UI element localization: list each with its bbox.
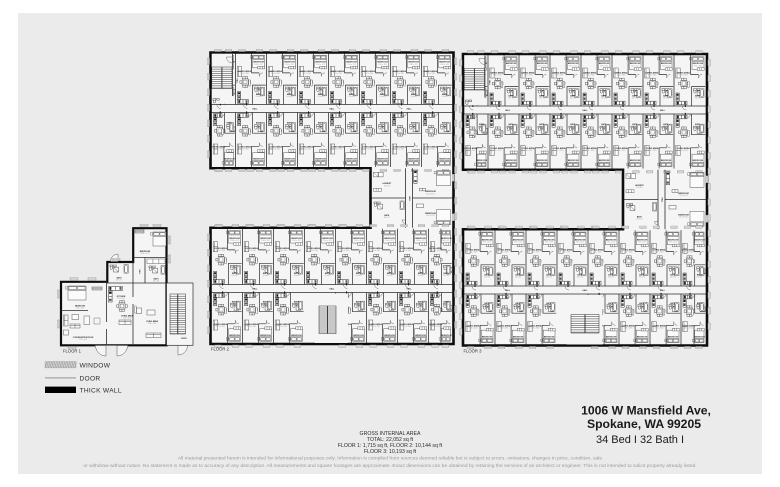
- svg-text:HALL: HALL: [582, 109, 588, 112]
- svg-text:12'4 x 13'0: 12'4 x 13'0: [679, 150, 688, 152]
- svg-text:BATH: BATH: [418, 301, 424, 304]
- svg-text:12'4 x 13'0: 12'4 x 13'0: [524, 150, 533, 152]
- svg-text:5'4 x 8'0: 5'4 x 8'0: [441, 125, 447, 127]
- svg-text:6'0 x 8'0: 6'0 x 8'0: [636, 187, 642, 189]
- svg-text:BATH: BATH: [515, 273, 521, 276]
- svg-text:12'4 x 13'0: 12'4 x 13'0: [655, 328, 664, 330]
- svg-text:5'4 x 8'0: 5'4 x 8'0: [546, 305, 552, 307]
- svg-text:10'0 x 11'2: 10'0 x 11'2: [285, 64, 293, 66]
- svg-text:BATH: BATH: [663, 94, 669, 97]
- svg-text:5'4 x 8'0: 5'4 x 8'0: [663, 126, 669, 128]
- svg-text:BATH: BATH: [387, 301, 393, 304]
- svg-text:10'0 x 11'2: 10'0 x 11'2: [385, 240, 393, 242]
- svg-text:12'4 x 13'0: 12'4 x 13'0: [247, 250, 256, 252]
- svg-text:10'0 x 11'2: 10'0 x 11'2: [545, 242, 553, 244]
- svg-text:All material presented herein: All material presented herein is intende…: [178, 455, 602, 461]
- svg-text:12'4 x 13'0: 12'4 x 13'0: [371, 250, 380, 252]
- svg-text:BATH: BATH: [508, 123, 514, 126]
- svg-text:12'4 x 13'0: 12'4 x 13'0: [364, 73, 373, 75]
- svg-text:10'0 x 11'2: 10'0 x 11'2: [347, 64, 355, 66]
- svg-text:5'4 x 8'0: 5'4 x 8'0: [695, 126, 701, 128]
- svg-text:5'4 x 8'0: 5'4 x 8'0: [696, 277, 702, 279]
- svg-text:12'4 x 13'0: 12'4 x 13'0: [340, 250, 349, 252]
- svg-text:BATH: BATH: [608, 302, 614, 305]
- svg-text:5'4 x 8'0: 5'4 x 8'0: [639, 305, 645, 307]
- svg-text:5'4 x 8'0: 5'4 x 8'0: [386, 275, 392, 277]
- svg-text:10'0 x 11'2: 10'0 x 11'2: [385, 337, 393, 339]
- svg-text:PATIO: PATIO: [181, 337, 187, 340]
- svg-text:BATH: BATH: [318, 93, 324, 96]
- svg-text:5'4 x 8'0: 5'4 x 8'0: [608, 305, 614, 307]
- svg-text:10'0 x 11'2: 10'0 x 11'2: [378, 161, 386, 163]
- svg-text:BATH: BATH: [570, 123, 576, 126]
- svg-text:10'0 x 11'2: 10'0 x 11'2: [669, 339, 677, 341]
- svg-text:5'4 x 8'0: 5'4 x 8'0: [231, 275, 237, 277]
- svg-text:12'4 x 13'0: 12'4 x 13'0: [278, 326, 287, 328]
- svg-text:5'4 x 8'0: 5'4 x 8'0: [443, 304, 449, 306]
- svg-text:12'4 x 13'0: 12'4 x 13'0: [216, 326, 225, 328]
- svg-text:10'0 x 11'2: 10'0 x 11'2: [607, 242, 615, 244]
- svg-text:5'4 x 8'0: 5'4 x 8'0: [515, 277, 521, 279]
- svg-text:5'4 x 8'0: 5'4 x 8'0: [348, 96, 354, 98]
- svg-text:12'4 x 13'0: 12'4 x 13'0: [271, 73, 280, 75]
- svg-text:5'4 x 8'0: 5'4 x 8'0: [262, 275, 268, 277]
- svg-text:5'4 x 8'0: 5'4 x 8'0: [546, 277, 552, 279]
- svg-text:BATH: BATH: [508, 94, 514, 97]
- svg-text:10'0 x 11'2: 10'0 x 11'2: [695, 242, 703, 244]
- svg-text:12'4 x 13'0: 12'4 x 13'0: [333, 73, 342, 75]
- svg-text:10'0 x 11'2: 10'0 x 11'2: [354, 337, 362, 339]
- svg-text:10'0 x 11'2: 10'0 x 11'2: [316, 161, 324, 163]
- svg-text:12'4 x 13'0: 12'4 x 13'0: [493, 150, 502, 152]
- svg-text:BATH: BATH: [418, 272, 424, 275]
- svg-text:BATH: BATH: [384, 214, 390, 217]
- svg-text:10'0 x 11'2: 10'0 x 11'2: [225, 161, 233, 163]
- svg-text:5'4 x 8'0: 5'4 x 8'0: [601, 98, 607, 100]
- svg-text:FLOOR 3: 10,193 sq ft: FLOOR 3: 10,193 sq ft: [364, 449, 417, 455]
- svg-text:BATH: BATH: [411, 121, 417, 124]
- svg-text:10'0 x 11'2: 10'0 x 11'2: [507, 162, 515, 164]
- svg-text:10'0 x 11'2: 10'0 x 11'2: [409, 161, 417, 163]
- svg-text:BATH: BATH: [294, 301, 300, 304]
- svg-text:BATH: BATH: [639, 302, 645, 305]
- svg-text:BATH: BATH: [356, 301, 362, 304]
- svg-text:5'4 x 8'0: 5'4 x 8'0: [508, 98, 514, 100]
- svg-text:HALL: HALL: [329, 287, 335, 290]
- svg-text:10'0 x 11'2: 10'0 x 11'2: [514, 242, 522, 244]
- svg-text:5'4 x 8'0: 5'4 x 8'0: [670, 277, 676, 279]
- svg-text:BATH: BATH: [608, 273, 614, 276]
- svg-text:BATH: BATH: [663, 123, 669, 126]
- svg-text:5'4 x 8'0: 5'4 x 8'0: [570, 126, 576, 128]
- svg-text:12'0 x 13'0: 12'0 x 13'0: [148, 323, 156, 325]
- svg-text:BATH: BATH: [444, 301, 450, 304]
- svg-text:BATH: BATH: [442, 93, 448, 96]
- svg-text:5'4 x 8'0: 5'4 x 8'0: [639, 277, 645, 279]
- svg-text:5'4 x 8'0: 5'4 x 8'0: [570, 98, 576, 100]
- svg-text:5'4 x 8'0: 5'4 x 8'0: [515, 305, 521, 307]
- svg-text:12'4 x 13'0: 12'4 x 13'0: [562, 252, 571, 254]
- svg-text:12'4 x 13'0: 12'4 x 13'0: [500, 328, 509, 330]
- svg-text:BATH: BATH: [546, 302, 552, 305]
- svg-text:12'4 x 13'0: 12'4 x 13'0: [624, 328, 633, 330]
- svg-text:HALL: HALL: [660, 289, 666, 292]
- svg-text:12'4 x 13'0: 12'4 x 13'0: [493, 75, 502, 77]
- svg-text:BATH: BATH: [515, 302, 521, 305]
- svg-text:10'0 x 11'2: 10'0 x 11'2: [292, 240, 300, 242]
- svg-text:BATH: BATH: [411, 93, 417, 96]
- svg-text:5'4 x 8'0: 5'4 x 8'0: [286, 125, 292, 127]
- svg-text:HALL: HALL: [661, 198, 664, 204]
- svg-text:12'4 x 13'0: 12'4 x 13'0: [593, 252, 602, 254]
- svg-text:LAUNDRY: LAUNDRY: [635, 184, 645, 187]
- svg-text:12'4 x 13'0: 12'4 x 13'0: [655, 252, 664, 254]
- svg-text:5'4 x 8'0: 5'4 x 8'0: [379, 96, 385, 98]
- svg-text:12'0 x 14'0: 12'0 x 14'0: [79, 339, 87, 341]
- svg-text:BATH: BATH: [484, 273, 490, 276]
- svg-text:BATH: BATH: [117, 277, 123, 280]
- svg-text:12'4 x 13'0: 12'4 x 13'0: [586, 150, 595, 152]
- svg-text:12'4 x 13'0: 12'4 x 13'0: [402, 250, 411, 252]
- svg-text:5'4 x 8'0: 5'4 x 8'0: [386, 304, 392, 306]
- svg-text:BATH: BATH: [263, 301, 269, 304]
- svg-text:BATH: BATH: [697, 273, 703, 276]
- svg-text:10'0 x 11'2: 10'0 x 11'2: [261, 240, 269, 242]
- svg-text:10'0 x 11'2: 10'0 x 11'2: [631, 162, 639, 164]
- svg-text:BATH: BATH: [539, 94, 545, 97]
- svg-text:5'4 x 8'0: 5'4 x 8'0: [417, 275, 423, 277]
- svg-text:12'4 x 13'0: 12'4 x 13'0: [467, 150, 476, 152]
- svg-text:BATH: BATH: [325, 272, 331, 275]
- svg-text:5'4 x 8'0: 5'4 x 8'0: [226, 125, 232, 127]
- svg-text:11'0 x 12'0: 11'0 x 12'0: [679, 217, 687, 219]
- svg-text:BATH: BATH: [356, 272, 362, 275]
- svg-text:12'4 x 13'0: 12'4 x 13'0: [240, 73, 249, 75]
- svg-text:BATH: BATH: [546, 273, 552, 276]
- svg-text:10'0 x 11'2: 10'0 x 11'2: [669, 242, 677, 244]
- svg-text:Spokane, WA 99205: Spokane, WA 99205: [587, 417, 701, 431]
- svg-text:5'4 x 8'0: 5'4 x 8'0: [317, 96, 323, 98]
- svg-text:BATH: BATH: [479, 123, 485, 126]
- svg-text:HALL: HALL: [505, 289, 511, 292]
- svg-text:12'4 x 13'0: 12'4 x 13'0: [586, 75, 595, 77]
- svg-text:11'0 x 12'0: 11'0 x 12'0: [76, 308, 84, 310]
- svg-text:BATH: BATH: [287, 93, 293, 96]
- svg-text:10'0 x 11'2: 10'0 x 11'2: [440, 161, 448, 163]
- svg-text:12'4 x 13'0: 12'4 x 13'0: [648, 75, 657, 77]
- svg-text:10'0 x 11'2: 10'0 x 11'2: [600, 65, 608, 67]
- svg-text:12'4 x 13'0: 12'4 x 13'0: [216, 250, 225, 252]
- svg-text:10'0 x 11'2: 10'0 x 11'2: [514, 339, 522, 341]
- svg-text:WINDOW: WINDOW: [80, 362, 111, 369]
- svg-text:12'4 x 13'0: 12'4 x 13'0: [214, 149, 223, 151]
- svg-text:11'0 x 13'6: 11'0 x 13'6: [123, 318, 131, 320]
- svg-text:5'4 x 8'0: 5'4 x 8'0: [601, 126, 607, 128]
- svg-text:12'4 x 13'0: 12'4 x 13'0: [684, 328, 693, 330]
- svg-text:5'4 x 8'0: 5'4 x 8'0: [231, 304, 237, 306]
- svg-text:BATH: BATH: [227, 121, 233, 124]
- svg-text:BATH: BATH: [442, 121, 448, 124]
- svg-text:8'0 x 10'0: 8'0 x 10'0: [117, 298, 124, 300]
- svg-text:FLOOR 1: FLOOR 1: [63, 349, 82, 354]
- svg-text:12'4 x 13'0: 12'4 x 13'0: [431, 250, 440, 252]
- svg-text:10'0 x 11'2: 10'0 x 11'2: [261, 337, 269, 339]
- svg-text:5'4 x 8'0: 5'4 x 8'0: [348, 125, 354, 127]
- svg-text:5'4 x 8'0: 5'4 x 8'0: [663, 98, 669, 100]
- svg-text:10'0 x 11'2: 10'0 x 11'2: [662, 65, 670, 67]
- svg-text:10'0 x 11'2: 10'0 x 11'2: [442, 240, 450, 242]
- svg-text:12'4 x 13'0: 12'4 x 13'0: [247, 326, 256, 328]
- svg-text:BATH: BATH: [232, 272, 238, 275]
- svg-text:10'0 x 11'2: 10'0 x 11'2: [569, 65, 577, 67]
- svg-text:HALL: HALL: [660, 109, 666, 112]
- svg-text:11'0 x 12'0: 11'0 x 12'0: [426, 215, 434, 217]
- svg-text:FLOOR 3: FLOOR 3: [464, 349, 483, 354]
- svg-text:12'4 x 13'0: 12'4 x 13'0: [500, 252, 509, 254]
- svg-text:BATH: BATH: [601, 123, 607, 126]
- svg-text:5'4 x 8'0: 5'4 x 8'0: [293, 275, 299, 277]
- svg-text:10'0 x 11'2: 10'0 x 11'2: [507, 65, 515, 67]
- svg-text:34 Bed I 32 Bath I: 34 Bed I 32 Bath I: [596, 434, 684, 446]
- svg-text:BATH: BATH: [670, 273, 676, 276]
- svg-text:BATH: BATH: [256, 93, 262, 96]
- svg-text:BATH: BATH: [632, 94, 638, 97]
- svg-text:12'4 x 13'0: 12'4 x 13'0: [624, 252, 633, 254]
- svg-text:12'4 x 13'0: 12'4 x 13'0: [617, 75, 626, 77]
- svg-text:10'0 x 11'2: 10'0 x 11'2: [600, 162, 608, 164]
- svg-text:BATH: BATH: [637, 216, 643, 219]
- svg-text:10'0 x 11'2: 10'0 x 11'2: [285, 161, 293, 163]
- svg-text:12'4 x 13'0: 12'4 x 13'0: [240, 149, 249, 151]
- svg-text:12'4 x 13'0: 12'4 x 13'0: [555, 150, 564, 152]
- svg-text:or withdraw without notice. No: or withdraw without notice. No statement…: [83, 463, 696, 469]
- svg-text:12'4 x 13'0: 12'4 x 13'0: [309, 250, 318, 252]
- svg-text:BATH: BATH: [632, 123, 638, 126]
- svg-text:10'0 x 11'2: 10'0 x 11'2: [631, 65, 639, 67]
- svg-text:BATH: BATH: [349, 121, 355, 124]
- svg-text:10'0 x 11'2: 10'0 x 11'2: [638, 242, 646, 244]
- svg-text:10'0 x 11'2: 10'0 x 11'2: [576, 242, 584, 244]
- svg-text:5'4 x 8'0: 5'4 x 8'0: [479, 126, 485, 128]
- svg-text:11'0 x 12'2: 11'0 x 12'2: [426, 193, 434, 195]
- svg-text:6'0 x 8'0: 6'0 x 8'0: [153, 281, 159, 283]
- svg-text:10'0 x 11'2: 10'0 x 11'2: [347, 161, 355, 163]
- svg-text:5'4 x 8'0: 5'4 x 8'0: [255, 96, 261, 98]
- svg-text:BATH: BATH: [232, 301, 238, 304]
- svg-text:BATH: BATH: [695, 94, 701, 97]
- svg-text:BATH: BATH: [697, 302, 703, 305]
- svg-text:10'0 x 11'2: 10'0 x 11'2: [569, 162, 577, 164]
- svg-text:HALL: HALL: [488, 80, 491, 86]
- svg-text:12'4 x 13'0: 12'4 x 13'0: [364, 149, 373, 151]
- svg-text:12'4 x 13'0: 12'4 x 13'0: [679, 75, 688, 77]
- svg-text:BATH: BATH: [380, 93, 386, 96]
- svg-text:HALL: HALL: [505, 109, 511, 112]
- svg-text:10'0 x 11'0: 10'0 x 11'0: [141, 253, 149, 255]
- svg-text:10'0 x 11'2: 10'0 x 11'2: [442, 337, 450, 339]
- svg-text:5'4 x 8'0: 5'4 x 8'0: [632, 98, 638, 100]
- svg-text:5'4 x 8'0: 5'4 x 8'0: [577, 277, 583, 279]
- svg-text:BATH: BATH: [380, 121, 386, 124]
- svg-text:5'6 x 7'0: 5'6 x 7'0: [636, 219, 642, 221]
- svg-text:12'4 x 13'0: 12'4 x 13'0: [648, 150, 657, 152]
- svg-text:5'4 x 8'0: 5'4 x 8'0: [286, 96, 292, 98]
- svg-text:12'4 x 13'0: 12'4 x 13'0: [555, 75, 564, 77]
- svg-text:10'0 x 11'2: 10'0 x 11'2: [323, 240, 331, 242]
- svg-text:CONVERSATION ROOM: CONVERSATION ROOM: [73, 336, 94, 339]
- svg-text:12'4 x 13'0: 12'4 x 13'0: [469, 252, 478, 254]
- svg-text:10'0 x 11'2: 10'0 x 11'2: [694, 65, 702, 67]
- svg-text:5'4 x 8'0: 5'4 x 8'0: [410, 125, 416, 127]
- svg-text:5'4 x 8'0: 5'4 x 8'0: [324, 275, 330, 277]
- svg-text:11'0 x 12'2: 11'0 x 12'2: [679, 195, 687, 197]
- svg-text:12'4 x 13'0: 12'4 x 13'0: [302, 73, 311, 75]
- svg-text:5'4 x 8'0: 5'4 x 8'0: [632, 126, 638, 128]
- svg-text:10'0 x 11'2: 10'0 x 11'2: [254, 161, 262, 163]
- svg-text:10'0 x 11'2: 10'0 x 11'2: [545, 339, 553, 341]
- svg-text:5'4 x 8'0: 5'4 x 8'0: [379, 125, 385, 127]
- svg-text:12'4 x 13'0: 12'4 x 13'0: [395, 73, 404, 75]
- svg-text:10'0 x 11'2: 10'0 x 11'2: [695, 339, 703, 341]
- svg-text:BATH: BATH: [670, 302, 676, 305]
- svg-text:BATH: BATH: [263, 272, 269, 275]
- svg-text:5'4 x 8'0: 5'4 x 8'0: [608, 277, 614, 279]
- svg-text:12'4 x 13'0: 12'4 x 13'0: [402, 326, 411, 328]
- svg-text:5'4 x 8'0: 5'4 x 8'0: [262, 304, 268, 306]
- svg-text:10'0 x 11'2: 10'0 x 11'2: [538, 162, 546, 164]
- svg-text:12'4 x 13'0: 12'4 x 13'0: [431, 326, 440, 328]
- svg-text:HALL: HALL: [408, 196, 411, 202]
- svg-text:THICK WALL: THICK WALL: [80, 388, 122, 395]
- svg-text:10'0 x 11'2: 10'0 x 11'2: [230, 337, 238, 339]
- svg-text:10'0 x 11'2: 10'0 x 11'2: [662, 162, 670, 164]
- svg-text:10'0 x 11'2: 10'0 x 11'2: [316, 64, 324, 66]
- svg-text:10'0 x 11'2: 10'0 x 11'2: [607, 339, 615, 341]
- svg-text:BATH: BATH: [154, 278, 160, 281]
- svg-text:HALL: HALL: [236, 78, 239, 84]
- svg-text:5'4 x 8'0: 5'4 x 8'0: [255, 125, 261, 127]
- svg-text:10'0 x 11'2: 10'0 x 11'2: [440, 64, 448, 66]
- svg-text:5'6 x 7'0: 5'6 x 7'0: [384, 217, 390, 219]
- svg-text:HALL: HALL: [582, 289, 588, 292]
- svg-text:5'4 x 8'0: 5'4 x 8'0: [695, 98, 701, 100]
- svg-text:HALL: HALL: [329, 107, 335, 110]
- svg-text:12'4 x 13'0: 12'4 x 13'0: [278, 250, 287, 252]
- svg-text:BATH: BATH: [294, 272, 300, 275]
- svg-text:1006 W Mansfield Ave,: 1006 W Mansfield Ave,: [581, 404, 711, 418]
- svg-text:5'4 x 8'0: 5'4 x 8'0: [355, 304, 361, 306]
- svg-text:BATH: BATH: [601, 94, 607, 97]
- svg-text:5'4 x 8'0: 5'4 x 8'0: [317, 125, 323, 127]
- svg-text:BATH: BATH: [287, 121, 293, 124]
- svg-text:5'4 x 8'0: 5'4 x 8'0: [539, 126, 545, 128]
- svg-text:LAUNDRY: LAUNDRY: [382, 182, 392, 185]
- svg-text:FLOOR 2: FLOOR 2: [211, 347, 230, 352]
- svg-text:5'4 x 8'0: 5'4 x 8'0: [484, 305, 490, 307]
- svg-text:12'4 x 13'0: 12'4 x 13'0: [617, 150, 626, 152]
- svg-text:5'4 x 8'0: 5'4 x 8'0: [539, 98, 545, 100]
- svg-text:10'0 x 11'2: 10'0 x 11'2: [538, 65, 546, 67]
- svg-text:5'6 x 7'0: 5'6 x 7'0: [116, 280, 122, 282]
- svg-text:10'0 x 11'2: 10'0 x 11'2: [409, 64, 417, 66]
- svg-text:HALL: HALL: [252, 107, 258, 110]
- svg-text:5'4 x 8'0: 5'4 x 8'0: [670, 305, 676, 307]
- svg-text:BATH: BATH: [444, 272, 450, 275]
- svg-text:BATH: BATH: [639, 273, 645, 276]
- svg-text:BATH: BATH: [318, 121, 324, 124]
- svg-text:5'4 x 8'0: 5'4 x 8'0: [696, 305, 702, 307]
- svg-text:12'4 x 13'0: 12'4 x 13'0: [271, 149, 280, 151]
- svg-text:10'0 x 11'2: 10'0 x 11'2: [416, 337, 424, 339]
- svg-text:12'4 x 13'0: 12'4 x 13'0: [531, 252, 540, 254]
- svg-text:5'4 x 8'0: 5'4 x 8'0: [410, 96, 416, 98]
- svg-text:5'4 x 8'0: 5'4 x 8'0: [508, 126, 514, 128]
- svg-text:BATH: BATH: [570, 94, 576, 97]
- svg-text:12'4 x 13'0: 12'4 x 13'0: [426, 73, 435, 75]
- svg-text:12'4 x 13'0: 12'4 x 13'0: [333, 149, 342, 151]
- svg-text:10'0 x 11'2: 10'0 x 11'2: [354, 240, 362, 242]
- svg-text:12'4 x 13'0: 12'4 x 13'0: [371, 326, 380, 328]
- svg-text:10'0 x 11'2: 10'0 x 11'2: [254, 64, 262, 66]
- svg-text:10'0 x 11'2: 10'0 x 11'2: [416, 240, 424, 242]
- svg-text:10'0 x 11'2: 10'0 x 11'2: [478, 162, 486, 164]
- svg-text:12'4 x 13'0: 12'4 x 13'0: [302, 149, 311, 151]
- svg-text:5'4 x 8'0: 5'4 x 8'0: [441, 96, 447, 98]
- svg-text:HALL: HALL: [252, 287, 258, 290]
- svg-text:10'0 x 11'2: 10'0 x 11'2: [638, 339, 646, 341]
- svg-text:5'4 x 8'0: 5'4 x 8'0: [417, 304, 423, 306]
- svg-text:10'0 x 11'2: 10'0 x 11'2: [378, 64, 386, 66]
- svg-text:5'4 x 8'0: 5'4 x 8'0: [293, 304, 299, 306]
- svg-text:10'0 x 11'2: 10'0 x 11'2: [694, 162, 702, 164]
- svg-text:HALL: HALL: [407, 287, 413, 290]
- svg-text:10'0 x 11'2: 10'0 x 11'2: [483, 339, 491, 341]
- svg-text:HALL: HALL: [407, 107, 413, 110]
- svg-text:12'4 x 13'0: 12'4 x 13'0: [395, 149, 404, 151]
- svg-text:BATH: BATH: [695, 123, 701, 126]
- svg-text:BATH: BATH: [577, 273, 583, 276]
- svg-text:5'4 x 8'0: 5'4 x 8'0: [355, 275, 361, 277]
- svg-text:12'4 x 13'0: 12'4 x 13'0: [524, 75, 533, 77]
- svg-text:BATH: BATH: [484, 302, 490, 305]
- svg-text:10'0 x 11'2: 10'0 x 11'2: [230, 240, 238, 242]
- svg-text:12'4 x 13'0: 12'4 x 13'0: [469, 328, 478, 330]
- svg-text:BATH: BATH: [539, 123, 545, 126]
- svg-text:12'4 x 13'0: 12'4 x 13'0: [426, 149, 435, 151]
- svg-text:BATH: BATH: [256, 121, 262, 124]
- svg-text:BATH: BATH: [349, 93, 355, 96]
- svg-text:5'4 x 8'0: 5'4 x 8'0: [443, 275, 449, 277]
- svg-text:12'4 x 13'0: 12'4 x 13'0: [531, 328, 540, 330]
- svg-text:10'0 x 11'2: 10'0 x 11'2: [292, 337, 300, 339]
- svg-text:DOOR: DOOR: [80, 376, 101, 383]
- svg-text:6'0 x 8'0: 6'0 x 8'0: [384, 185, 390, 187]
- svg-text:10'0 x 11'2: 10'0 x 11'2: [483, 242, 491, 244]
- svg-text:5'4 x 8'0: 5'4 x 8'0: [484, 277, 490, 279]
- svg-text:BATH: BATH: [387, 272, 393, 275]
- svg-text:12'4 x 13'0: 12'4 x 13'0: [684, 252, 693, 254]
